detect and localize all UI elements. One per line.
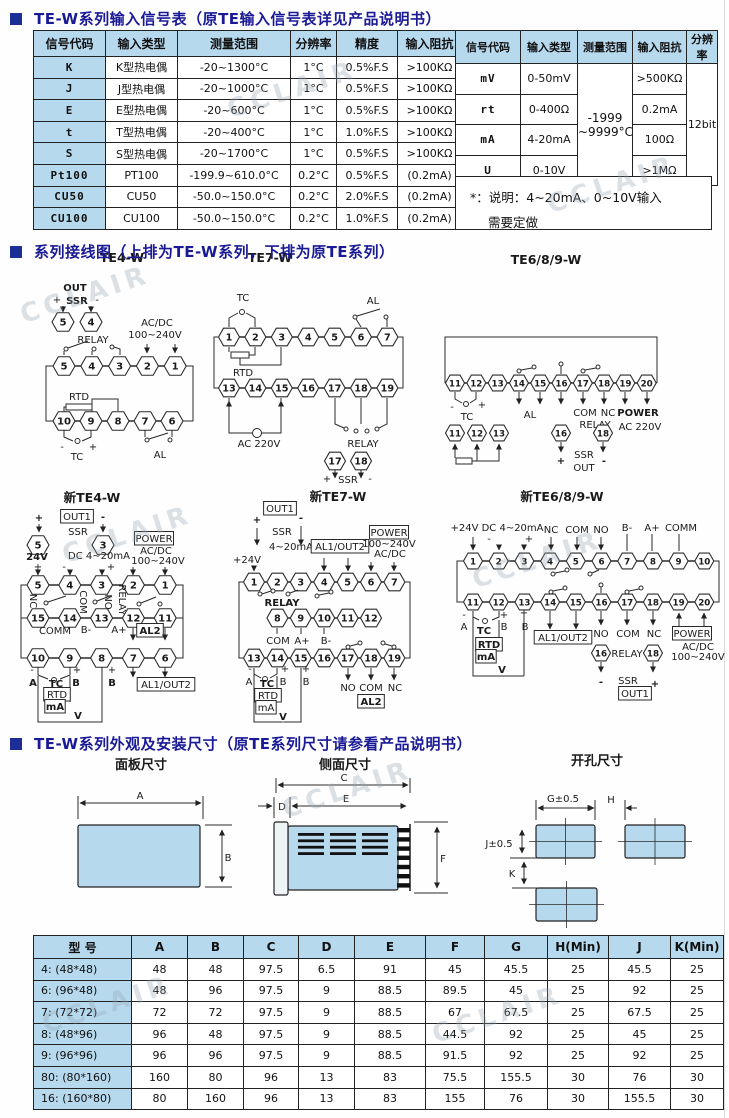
table-cell: 96: [188, 980, 244, 1002]
table-cell: 9: [299, 1002, 355, 1024]
svg-text:8: 8: [98, 653, 105, 664]
table-cell: 97.5: [244, 980, 299, 1002]
column-header: 输入阻抗: [633, 31, 687, 64]
svg-text:+: +: [108, 665, 116, 676]
svg-text:A: A: [246, 677, 253, 688]
table-cell: 25: [548, 1023, 609, 1045]
table-cell: 91.5: [426, 1045, 485, 1067]
svg-text:SSR: SSR: [272, 527, 292, 538]
svg-text:2: 2: [274, 577, 281, 588]
svg-text:100~240V: 100~240V: [128, 330, 182, 341]
table-cell: 155: [426, 1088, 485, 1110]
table-cell: 83: [355, 1066, 426, 1088]
svg-text:+: +: [253, 515, 261, 526]
svg-text:2: 2: [252, 332, 259, 343]
table-row: 16: (160*80)801609613831557630155.530: [34, 1088, 724, 1110]
table-row: 8: (48*96)964897.5988.544.592254525: [34, 1023, 724, 1045]
svg-text:5: 5: [34, 580, 41, 591]
svg-text:17: 17: [328, 456, 341, 467]
table-cell: 76: [609, 1066, 671, 1088]
svg-text:18: 18: [364, 653, 378, 664]
table-cell: CU50: [106, 186, 178, 208]
table-cell: 48: [188, 959, 244, 981]
table-cell: 9: [299, 1045, 355, 1067]
table-row: tT型热电偶-20~400°C1°C1.0%F.S>100KΩ: [34, 121, 462, 143]
svg-text:12: 12: [471, 429, 483, 439]
svg-text:K: K: [509, 869, 516, 880]
svg-text:AC/DC: AC/DC: [374, 549, 406, 560]
svg-text:13: 13: [492, 379, 504, 389]
svg-text:13: 13: [95, 613, 109, 624]
svg-text:TC: TC: [70, 452, 84, 463]
table-cell: 88.5: [355, 1002, 426, 1024]
svg-text:14: 14: [249, 383, 263, 394]
svg-text:1: 1: [470, 557, 476, 567]
svg-text:C: C: [341, 773, 348, 784]
table-cell: 0.2°C: [291, 208, 337, 230]
table-cell: 45: [426, 959, 485, 981]
svg-text:12: 12: [493, 598, 505, 608]
svg-text:RTD: RTD: [233, 368, 253, 379]
table-cell: 0.5%F.S: [337, 78, 398, 100]
table-cell: (0.2mA): [398, 164, 462, 186]
svg-text:F: F: [440, 854, 446, 865]
table-cell: PT100: [106, 164, 178, 186]
table-cell: 30: [671, 1088, 724, 1110]
column-header: 信号代码: [34, 31, 106, 57]
svg-text:10: 10: [698, 557, 710, 567]
table-cell: 1°C: [291, 78, 337, 100]
svg-text:17: 17: [621, 598, 633, 608]
svg-text:B: B: [225, 853, 232, 864]
column-header: 精度: [337, 31, 398, 57]
table-cell: -20~600°C: [178, 100, 291, 122]
column-header: J: [609, 936, 671, 959]
svg-text:5: 5: [344, 577, 351, 588]
table-cell: 92: [485, 1045, 548, 1067]
svg-text:OUT1: OUT1: [63, 512, 91, 523]
table-cell: 96: [188, 1045, 244, 1067]
svg-text:20: 20: [698, 598, 710, 608]
section-header-dimensions: TE-W系列外观及安装尺寸（原TE系列尺寸请参看产品说明书）: [10, 733, 472, 754]
svg-text:12: 12: [470, 379, 482, 389]
svg-text:100~240V: 100~240V: [131, 556, 185, 567]
svg-text:mA: mA: [46, 702, 64, 713]
svg-text:100~240V: 100~240V: [671, 652, 725, 663]
column-header: G: [485, 936, 548, 959]
svg-text:15: 15: [31, 613, 45, 624]
svg-text:TC: TC: [477, 626, 491, 637]
svg-text:H: H: [607, 795, 615, 806]
table-cell: 67.5: [609, 1002, 671, 1024]
note-line-2: 需要定做: [488, 212, 711, 231]
svg-text:+24V DC 4~20mA: +24V DC 4~20mA: [450, 523, 543, 534]
table-cell: >500KΩ: [633, 64, 687, 95]
svg-text:7: 7: [384, 332, 391, 343]
svg-text:7: 7: [624, 557, 630, 567]
svg-text:SSR: SSR: [618, 676, 638, 687]
table-row: 80: (80*160)1608096138375.5155.5307630: [34, 1066, 724, 1088]
table-cell: 88.5: [355, 1045, 426, 1067]
svg-text:19: 19: [673, 598, 685, 608]
table-row: CU100CU100-50.0~150.0°C0.2°C1.0%F.S(0.2m…: [34, 208, 462, 230]
svg-text:B-: B-: [622, 523, 633, 534]
svg-text:16: 16: [595, 598, 607, 608]
column-header: 输入类型: [106, 31, 178, 57]
table-cell: 25: [671, 1045, 724, 1067]
svg-text:-: -: [368, 474, 372, 485]
table-cell: K: [34, 57, 106, 79]
svg-text:AL1/OUT2: AL1/OUT2: [315, 542, 365, 553]
section-bullet-icon: [10, 246, 22, 258]
svg-text:+: +: [557, 456, 565, 467]
table-cell: 75.5: [426, 1066, 485, 1088]
svg-text:侧面尺寸: 侧面尺寸: [319, 757, 371, 773]
svg-text:AC 220V: AC 220V: [238, 439, 281, 450]
svg-text:AL2: AL2: [360, 697, 381, 708]
svg-text:OUT: OUT: [573, 463, 595, 474]
svg-text:17: 17: [577, 379, 589, 389]
svg-text:+: +: [500, 610, 508, 621]
svg-text:5: 5: [34, 540, 41, 551]
svg-text:11: 11: [449, 379, 461, 389]
svg-text:NC: NC: [27, 594, 38, 608]
svg-text:15: 15: [570, 598, 582, 608]
svg-text:AL1/OUT2: AL1/OUT2: [538, 633, 588, 644]
svg-text:6: 6: [368, 577, 375, 588]
svg-text:2: 2: [144, 361, 151, 372]
table-cell: 67.5: [485, 1002, 548, 1024]
column-header: D: [299, 936, 355, 959]
table-row: KK型热电偶-20~1300°C1°C0.5%F.S>100KΩ: [34, 57, 462, 79]
svg-text:D: D: [278, 802, 286, 813]
table-cell: 6.5: [299, 959, 355, 981]
column-header: 分辨率: [291, 31, 337, 57]
svg-text:NC: NC: [647, 629, 661, 640]
svg-text:18: 18: [597, 429, 609, 439]
table-row: JJ型热电偶-20~1000°C1°C0.5%F.S>100KΩ: [34, 78, 462, 100]
table-cell: Pt100: [34, 164, 106, 186]
table-cell: t: [34, 121, 106, 143]
table-cell: >100KΩ: [398, 121, 462, 143]
column-header: B: [188, 936, 244, 959]
table-cell: J: [34, 78, 106, 100]
svg-text:POWER: POWER: [673, 629, 710, 640]
svg-text:mA: mA: [258, 703, 275, 714]
svg-text:NC: NC: [601, 408, 615, 419]
svg-text:8: 8: [114, 416, 121, 427]
table-cell: 4: (48*48): [34, 959, 132, 981]
svg-text:9: 9: [66, 653, 73, 664]
svg-text:7: 7: [391, 577, 398, 588]
svg-text:SSR: SSR: [574, 450, 594, 461]
table-cell: 9: [299, 1023, 355, 1045]
table-cell: 97.5: [244, 1045, 299, 1067]
svg-text:NO: NO: [340, 683, 355, 694]
svg-text:3: 3: [297, 577, 304, 588]
table-cell: 88.5: [355, 980, 426, 1002]
svg-text:16: 16: [301, 383, 315, 394]
svg-text:18: 18: [354, 456, 368, 467]
table-cell: 25: [548, 980, 609, 1002]
svg-text:+: +: [651, 679, 659, 690]
input-signal-table-left: 信号代码输入类型测量范围分辨率精度输入阻抗KK型热电偶-20~1300°C1°C…: [33, 30, 462, 230]
table-cell: -1999 ~9999°C: [578, 64, 633, 186]
svg-text:+: +: [281, 664, 289, 675]
table-cell: 45: [485, 980, 548, 1002]
table-cell: 13: [299, 1066, 355, 1088]
table-cell: 0.2°C: [291, 164, 337, 186]
svg-text:+: +: [53, 295, 61, 306]
svg-text:B-: B-: [81, 625, 92, 636]
table-cell: 48: [188, 1023, 244, 1045]
table-cell: (0.2mA): [398, 186, 462, 208]
svg-text:+: +: [73, 665, 81, 676]
svg-text:V: V: [498, 665, 506, 676]
table-cell: >100KΩ: [398, 143, 462, 165]
section-header-signal-table: TE-W系列输入信号表（原TE输入信号表详见产品说明书）: [10, 8, 441, 29]
svg-text:3: 3: [116, 361, 123, 372]
column-header: 信号代码: [456, 31, 521, 64]
table-cell: 92: [609, 1045, 671, 1067]
svg-text:面板尺寸: 面板尺寸: [115, 757, 167, 773]
svg-text:POWER: POWER: [617, 408, 659, 419]
svg-text:-: -: [101, 512, 105, 523]
column-header: A: [132, 936, 188, 959]
svg-text:RELAY: RELAY: [116, 584, 127, 616]
table-cell: CU100: [106, 208, 178, 230]
table-cell: rt: [456, 94, 521, 125]
table-cell: mA: [456, 125, 521, 156]
svg-text:AL2: AL2: [139, 626, 160, 637]
column-header: 测量范围: [178, 31, 291, 57]
table-cell: 72: [132, 1002, 188, 1024]
svg-text:TC: TC: [236, 293, 250, 304]
table-cell: CU100: [34, 208, 106, 230]
table-cell: 1°C: [291, 143, 337, 165]
svg-text:15: 15: [534, 379, 546, 389]
svg-text:RELAY: RELAY: [611, 649, 643, 660]
table-cell: 13: [299, 1088, 355, 1110]
column-header: H(Min): [548, 936, 609, 959]
svg-text:COMM: COMM: [665, 523, 697, 534]
table-cell: J型热电偶: [106, 78, 178, 100]
section-header-wiring: 系列接线图（上排为TE-W系列，下排为原TE系列）: [10, 241, 395, 262]
table-cell: 12bit: [687, 64, 718, 186]
svg-text:OUT1: OUT1: [266, 504, 294, 515]
table-cell: 97.5: [244, 959, 299, 981]
svg-text:9: 9: [676, 557, 682, 567]
svg-text:+24V: +24V: [233, 555, 261, 566]
table-cell: 76: [485, 1088, 548, 1110]
table-cell: 48: [132, 980, 188, 1002]
svg-text:10: 10: [317, 613, 331, 624]
table-cell: >100KΩ: [398, 57, 462, 79]
svg-text:16: 16: [317, 653, 331, 664]
table-row: EE型热电偶-20~600°C1°C0.5%F.S>100KΩ: [34, 100, 462, 122]
svg-text:19: 19: [619, 379, 631, 389]
section-bullet-icon: [10, 13, 22, 25]
table-cell: 96: [132, 1045, 188, 1067]
svg-text:-: -: [95, 295, 99, 306]
table-cell: 155.5: [609, 1088, 671, 1110]
svg-text:8: 8: [650, 557, 656, 567]
svg-text:B: B: [280, 677, 287, 688]
table-cell: 88.5: [355, 1023, 426, 1045]
column-header: 测量范围: [578, 31, 633, 64]
svg-text:新TE7-W: 新TE7-W: [310, 489, 367, 504]
table-cell: 80: (80*160): [34, 1066, 132, 1088]
svg-text:1: 1: [172, 361, 179, 372]
table-cell: 96: [244, 1066, 299, 1088]
datasheet-page: TE-W系列输入信号表（原TE输入信号表详见产品说明书） 信号代码输入类型测量范…: [0, 0, 729, 1118]
table-cell: E: [34, 100, 106, 122]
table-cell: 0.5%F.S: [337, 57, 398, 79]
table-cell: 0.5%F.S: [337, 164, 398, 186]
svg-text:-: -: [462, 610, 466, 621]
table-cell: 160: [132, 1066, 188, 1088]
svg-text:COM: COM: [616, 629, 639, 640]
svg-text:B: B: [501, 622, 508, 633]
svg-text:3: 3: [98, 580, 105, 591]
table-cell: 1.0%F.S: [337, 208, 398, 230]
table-cell: S型热电偶: [106, 143, 178, 165]
svg-text:18: 18: [598, 379, 610, 389]
table-cell: 0.5%F.S: [337, 143, 398, 165]
svg-text:AC 220V: AC 220V: [619, 422, 662, 433]
svg-text:-: -: [248, 664, 252, 675]
table-cell: 92: [485, 1023, 548, 1045]
table-cell: -50.0~150.0°C: [178, 208, 291, 230]
table-row: 7: (72*72)727297.5988.56767.52567.525: [34, 1002, 724, 1024]
table-cell: 160: [188, 1088, 244, 1110]
table-cell: CU50: [34, 186, 106, 208]
table-cell: 48: [132, 959, 188, 981]
table-cell: 0.5%F.S: [337, 100, 398, 122]
table-cell: 2.0%F.S: [337, 186, 398, 208]
table-cell: 72: [188, 1002, 244, 1024]
svg-text:-: -: [60, 442, 64, 453]
svg-text:14: 14: [63, 613, 77, 624]
svg-text:17: 17: [328, 383, 341, 394]
svg-text:V: V: [74, 711, 82, 722]
table-cell: 92: [609, 980, 671, 1002]
table-cell: 0.2mA: [633, 94, 687, 125]
svg-text:-: -: [30, 665, 34, 676]
svg-text:20: 20: [641, 379, 653, 389]
svg-text:J±0.5: J±0.5: [484, 839, 512, 850]
svg-text:AL1/OUT2: AL1/OUT2: [141, 680, 191, 691]
svg-text:16: 16: [555, 429, 567, 439]
svg-text:+: +: [35, 513, 43, 524]
svg-text:DC 4~20mA: DC 4~20mA: [68, 551, 130, 562]
svg-text:12: 12: [126, 613, 140, 624]
section-title: TE-W系列输入信号表（原TE输入信号表详见产品说明书）: [34, 8, 441, 29]
table-cell: 80: [188, 1066, 244, 1088]
table-row: Pt100PT100-199.9~610.0°C0.2°C0.5%F.S(0.2…: [34, 164, 462, 186]
section-title: TE-W系列外观及安装尺寸（原TE系列尺寸请参看产品说明书）: [34, 733, 472, 754]
svg-text:18: 18: [647, 598, 659, 608]
svg-text:COM: COM: [359, 683, 382, 694]
svg-text:4: 4: [66, 580, 73, 591]
column-header: 型 号: [34, 936, 132, 959]
svg-text:2: 2: [496, 557, 502, 567]
svg-text:-: -: [599, 677, 603, 688]
svg-text:3: 3: [521, 557, 527, 567]
svg-text:-: -: [450, 402, 454, 413]
svg-text:5: 5: [59, 317, 66, 328]
table-cell: 25: [671, 1023, 724, 1045]
table-cell: -199.9~610.0°C: [178, 164, 291, 186]
svg-text:A: A: [461, 622, 468, 633]
table-cell: 30: [671, 1066, 724, 1088]
svg-text:5: 5: [573, 557, 579, 567]
svg-text:16: 16: [595, 649, 607, 659]
svg-text:-: -: [299, 513, 303, 524]
svg-text:RELAY: RELAY: [265, 598, 301, 609]
svg-text:AL: AL: [524, 410, 537, 421]
table-cell: -20~1300°C: [178, 57, 291, 79]
svg-text:15: 15: [294, 653, 308, 664]
svg-text:6: 6: [598, 557, 604, 567]
table-cell: >100KΩ: [398, 100, 462, 122]
svg-text:+: +: [89, 442, 97, 453]
column-header: K(Min): [671, 936, 724, 959]
note-line-1: *：说明：4~20mA、0~10V输入: [470, 187, 711, 206]
svg-text:POWER: POWER: [135, 534, 172, 545]
svg-text:A: A: [137, 791, 144, 802]
svg-text:+: +: [323, 474, 331, 485]
svg-text:10: 10: [57, 416, 71, 427]
table-cell: 80: [132, 1088, 188, 1110]
svg-text:11: 11: [158, 613, 172, 624]
svg-text:11: 11: [341, 613, 355, 624]
column-header: 输入阻抗: [398, 31, 462, 57]
table-cell: 0-400Ω: [521, 94, 578, 125]
input-signal-table-right: 信号代码输入类型测量范围输入阻抗分辨率mV0-50mV-1999 ~9999°C…: [455, 30, 718, 186]
table-row: 9: (96*96)969697.5988.591.592259225: [34, 1045, 724, 1067]
table-cell: 83: [355, 1088, 426, 1110]
section-title: 系列接线图（上排为TE-W系列，下排为原TE系列）: [34, 241, 395, 262]
svg-text:13: 13: [518, 598, 530, 608]
column-header: C: [244, 936, 299, 959]
svg-text:SSR: SSR: [66, 296, 88, 307]
svg-text:13: 13: [222, 383, 235, 394]
svg-text:14: 14: [544, 598, 556, 608]
svg-text:RELAY: RELAY: [347, 439, 379, 450]
table-cell: 67: [426, 1002, 485, 1024]
svg-text:12: 12: [364, 613, 377, 624]
table-cell: 16: (160*80): [34, 1088, 132, 1110]
svg-text:1: 1: [251, 577, 258, 588]
svg-text:7: 7: [141, 416, 148, 427]
svg-text:1: 1: [226, 332, 233, 343]
svg-text:14: 14: [513, 379, 525, 389]
svg-text:E: E: [343, 794, 349, 805]
dimension-size-table: 型 号ABCDEFGH(Min)JK(Min)4: (48*48)484897.…: [33, 935, 724, 1110]
svg-text:4~20mA: 4~20mA: [269, 542, 313, 553]
table-row: 6: (96*48)489697.5988.589.545259225: [34, 980, 724, 1002]
svg-text:13: 13: [493, 429, 505, 439]
table-cell: 89.5: [426, 980, 485, 1002]
svg-text:RELAY: RELAY: [77, 335, 109, 346]
svg-text:5: 5: [331, 332, 338, 343]
column-header: F: [426, 936, 485, 959]
table-cell: 45: [609, 1023, 671, 1045]
svg-text:A+: A+: [294, 636, 309, 647]
svg-text:A: A: [29, 678, 37, 689]
table-cell: 30: [548, 1066, 609, 1088]
